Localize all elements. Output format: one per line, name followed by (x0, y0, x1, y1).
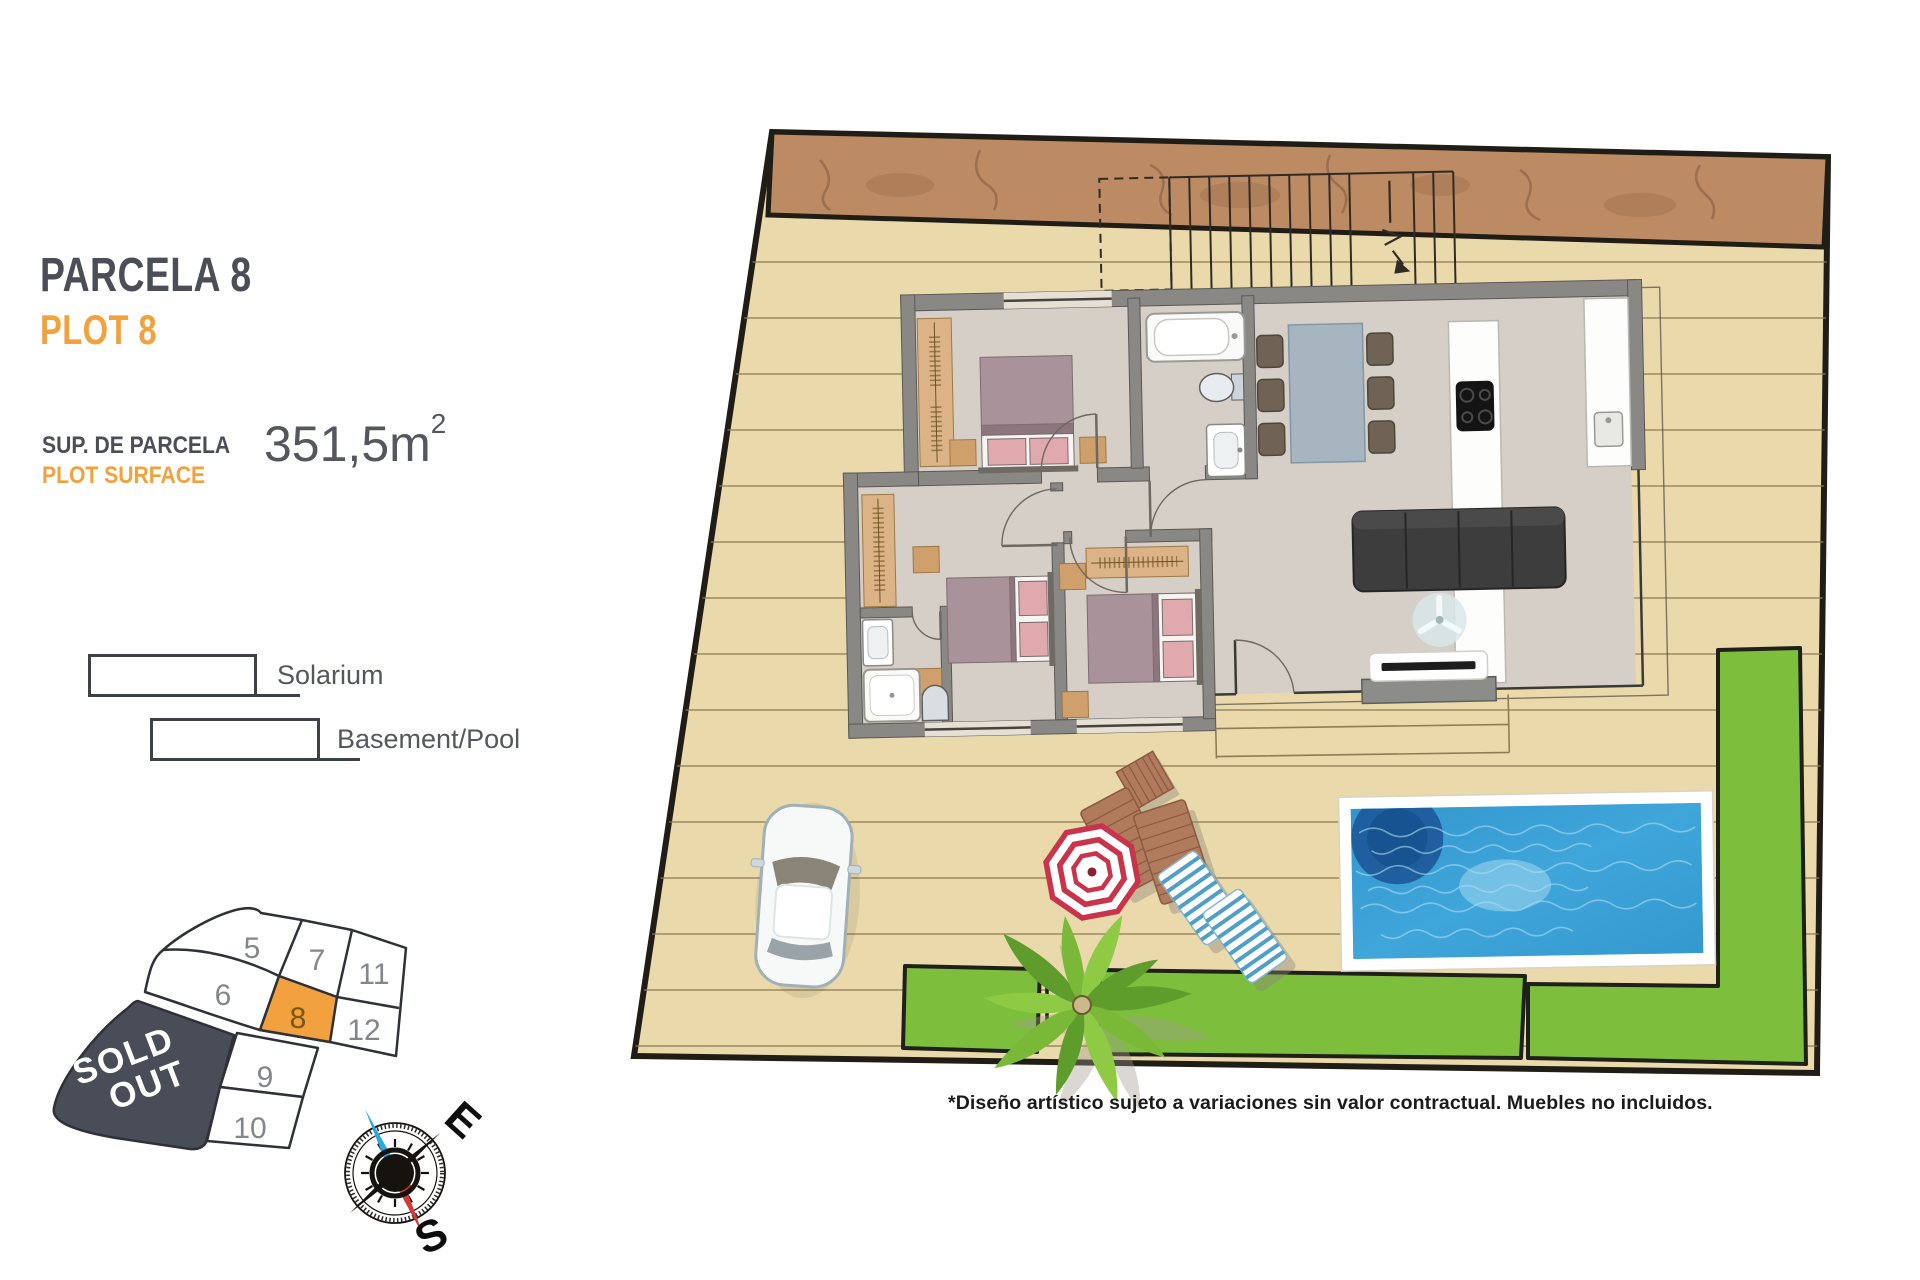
mini-map-plot-label: 5 (244, 932, 261, 965)
legend-label-solarium: Solarium (277, 660, 384, 691)
surface-label-es: SUP. DE PARCELA (42, 432, 256, 460)
compass-east-label: E (435, 1092, 490, 1148)
bathtub-icon (1146, 312, 1245, 362)
mini-map-plot-label: 7 (309, 944, 326, 977)
dining-table (1288, 323, 1365, 463)
cooktop-icon (1456, 381, 1495, 432)
site-plan: 5 7 11 6 8 12 9 10 SOLD OUT E S (0, 0, 1920, 1280)
page-subtitle: PLOT 8 (40, 306, 190, 354)
wardrobe-icon (917, 318, 954, 467)
sink-icon (1206, 424, 1245, 477)
sink-icon (862, 619, 893, 666)
wardrobe-icon (862, 494, 896, 607)
mini-map-plot-label: 9 (257, 1061, 274, 1094)
plot-area (600, 132, 1870, 1115)
sofa (1352, 507, 1566, 591)
legend-swatch-solarium (88, 654, 257, 697)
legend-swatch-basement-pool (150, 718, 320, 761)
surface-value: 351,5m2 (264, 408, 446, 473)
mini-map: 5 7 11 6 8 12 9 10 SOLD OUT (54, 908, 406, 1149)
mini-map-plot-label: 6 (215, 979, 232, 1012)
mini-map-plot-label: 12 (347, 1014, 380, 1047)
surface-label-en: PLOT SURFACE (42, 462, 227, 490)
kitchen-sink-icon (1594, 412, 1623, 447)
legend-label-basement-pool: Basement/Pool (337, 724, 520, 755)
shower-tray-icon (863, 669, 920, 722)
lawn-middle (1097, 970, 1525, 1058)
compass-rose-icon: E S (345, 1092, 490, 1264)
pool (1338, 787, 1715, 972)
disclaimer-text: *Diseño artístico sujeto a variaciones s… (948, 1092, 1868, 1115)
mini-map-plot-label: 8 (290, 1002, 307, 1035)
page-title: PARCELA 8 (40, 248, 311, 303)
toilet-icon (922, 685, 949, 721)
compass-south-label: S (407, 1208, 455, 1265)
wardrobe-icon (1086, 546, 1189, 578)
tv-unit (1361, 651, 1496, 704)
toilet-icon (1199, 373, 1244, 402)
mini-map-plot-label: 11 (358, 958, 389, 991)
dining-area (1256, 323, 1395, 464)
mini-map-plot-label: 10 (233, 1112, 266, 1145)
